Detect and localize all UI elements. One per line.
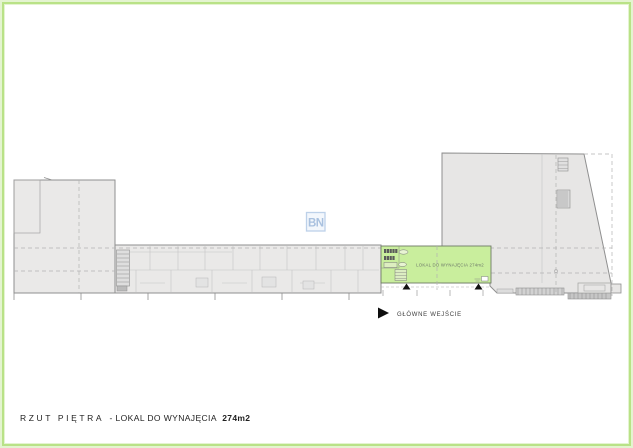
rental-unit-label: LOKAL DO WYNAJĘCIA 274m2 [416,263,484,268]
left-wing [14,178,115,294]
bn-watermark-label: BN [308,218,324,230]
corridor-wing [115,245,381,293]
bn-watermark: BN [307,213,326,232]
shaft-icon [558,158,568,171]
stairwell-icon [117,250,130,291]
entrance-arrow-icon [403,284,411,290]
main-entrance-label: GŁÓWNE WEJŚCIE [397,310,462,318]
drawing-title: RZUT PIĘTRA - LOKAL DO WYNAJĘCIA 274m2 [20,413,250,423]
unit-stairs-icon [395,270,407,281]
title-floor-plan: RZUT PIĘTRA [20,413,104,423]
main-entrance-callout: GŁÓWNE WEJŚCIE [378,308,462,319]
entrance-arrow-icon [475,284,483,290]
unit-door-detail [482,277,489,282]
survey-ticks [14,294,349,301]
floor-plan-svg: LOKAL DO WYNAJĘCIA 274m2 [0,0,633,448]
title-premises: - LOKAL DO WYNAJĘCIA [110,413,217,423]
stairs-icon [557,190,570,208]
floorplan-page: LOKAL DO WYNAJĘCIA 274m2 [0,0,633,448]
title-area-value: 274m2 [222,413,250,423]
rental-unit-area: LOKAL DO WYNAJĘCIA 274m2 [381,246,491,290]
entrance-direction-icon [378,308,389,319]
